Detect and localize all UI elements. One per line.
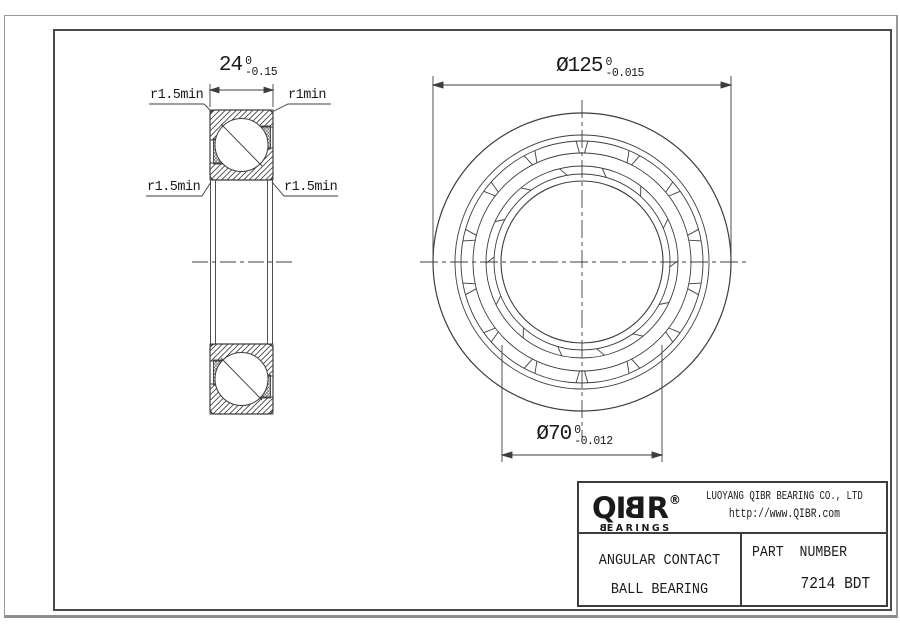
section-view xyxy=(146,84,338,414)
product-type-cell: ANGULAR CONTACT BALL BEARING xyxy=(579,534,742,607)
width-dimension-text: 24 0 -0.15 xyxy=(206,55,290,78)
title-block-header-row: QIBR® BEARINGS LUOYANG QIBR BEARING CO.,… xyxy=(579,483,886,534)
part-number-cell: PART NUMBER 7214 BDT xyxy=(742,534,886,607)
part-number-value: 7214 BDT xyxy=(800,574,870,593)
company-logo: QIBR® BEARINGS xyxy=(579,483,680,532)
dim-tolerance: 0 -0.012 xyxy=(574,425,612,447)
product-line1: ANGULAR CONTACT xyxy=(587,546,732,575)
company-info: LUOYANG QIBR BEARING CO., LTD http://www… xyxy=(680,483,889,532)
product-line2: BALL BEARING xyxy=(587,575,732,604)
company-website: http://www.QIBR.com xyxy=(703,507,866,521)
dim-value: Ø70 xyxy=(536,424,571,446)
radius-label-top-right: r1min xyxy=(288,88,326,103)
section-bottom-ring xyxy=(210,344,273,414)
dim-tolerance: 0 -0.15 xyxy=(245,56,277,78)
company-name: LUOYANG QIBR BEARING CO., LTD xyxy=(706,489,863,503)
radius-label-mid-right: r1.5min xyxy=(284,180,337,195)
radius-label-mid-left: r1.5min xyxy=(147,180,200,195)
dim-value: Ø125 xyxy=(556,56,602,78)
title-block-detail-row: ANGULAR CONTACT BALL BEARING PART NUMBER… xyxy=(579,534,886,607)
drawing-canvas: 24 0 -0.15 r1.5min r1min r1.5min r1.5min… xyxy=(0,0,900,636)
logo-wordmark: QIBR® xyxy=(592,486,680,523)
radius-label-top-left: r1.5min xyxy=(150,88,203,103)
registered-trademark-icon: ® xyxy=(669,493,680,507)
title-block: QIBR® BEARINGS LUOYANG QIBR BEARING CO.,… xyxy=(577,481,888,607)
bore-dia-dimension-text: Ø70 0 -0.012 xyxy=(482,424,667,447)
dim-value: 24 xyxy=(219,55,242,77)
width-dimension xyxy=(210,84,273,107)
part-number-label: PART NUMBER xyxy=(752,544,847,561)
front-view xyxy=(420,76,750,462)
outer-dia-dimension-text: Ø125 0 -0.015 xyxy=(510,56,690,79)
section-top-ring xyxy=(210,110,273,180)
dim-tolerance: 0 -0.015 xyxy=(606,57,644,79)
